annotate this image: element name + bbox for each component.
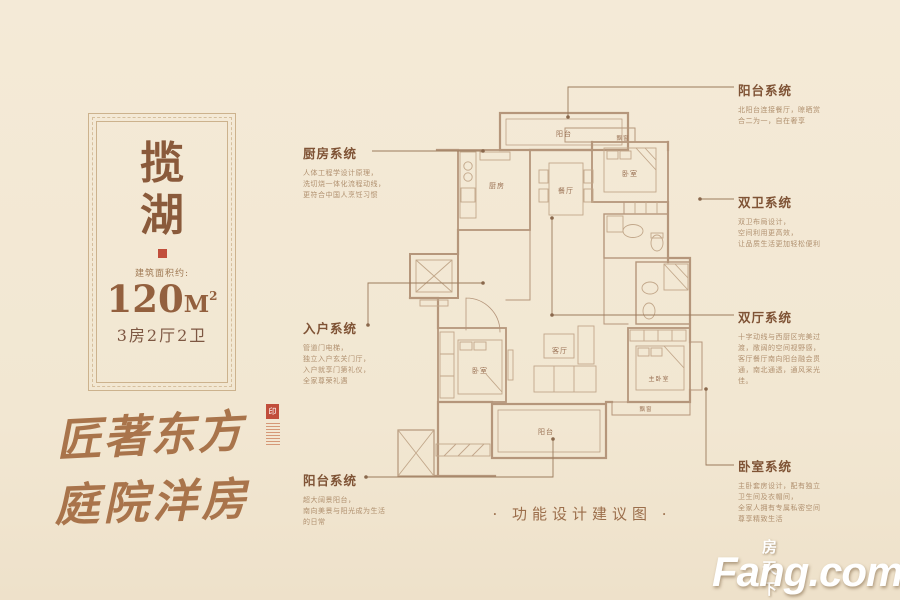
- slogan-seal-microtext: [266, 423, 280, 445]
- project-name-char1: 揽: [140, 138, 184, 190]
- room-label-balcony-top: 阳台: [556, 129, 572, 138]
- desc-line: 合二为一，自在奢享: [738, 116, 860, 127]
- annotation-title: 阳台系统: [738, 80, 860, 99]
- desc-line: 洗切烧一体化流程动线，: [303, 179, 425, 190]
- annotation-balcony-system-right: 阳台系统 北阳台连接餐厅，晾晒赏 合二为一，自在奢享: [738, 80, 860, 127]
- floor-plan-fixtures: [398, 148, 688, 476]
- desc-line: 独立入户玄关门厅，: [303, 354, 425, 365]
- annotation-hall-system: 双厅系统 十字动线与西厨区完美过 渡，敞阔的空间视野感， 客厅餐厅南向阳台融会贯…: [738, 307, 860, 387]
- desc-line: 十字动线与西厨区完美过: [738, 332, 860, 343]
- desc-line: 管道门电梯，: [303, 343, 425, 354]
- area-unit: M: [184, 293, 209, 316]
- desc-line: 通，南北通透，通风采光: [738, 365, 860, 376]
- annotation-title: 卧室系统: [738, 456, 860, 475]
- room-label-bay-top: 飘窗: [616, 134, 629, 142]
- annotation-bedroom-system: 卧室系统 主卧套房设计，配有独立 卫生间及衣帽间， 全家人拥有专属私密空间 尊享…: [738, 456, 860, 525]
- annotation-title: 厨房系统: [303, 143, 425, 162]
- annotation-desc: 十字动线与西厨区完美过 渡，敞阔的空间视野感， 客厅餐厅南向阳台融会贯 通，南北…: [738, 332, 860, 387]
- desc-line: 的日常: [303, 517, 425, 528]
- desc-line: 卫生间及衣帽间，: [738, 492, 860, 503]
- annotation-bath-system: 双卫系统 双卫布局设计， 空间利用更高效， 让品质生活更加轻松便利: [738, 192, 860, 250]
- area-superscript: 2: [209, 290, 217, 302]
- desc-line: 双卫布局设计，: [738, 217, 860, 228]
- seal-mark: [158, 249, 167, 258]
- annotation-desc: 双卫布局设计， 空间利用更高效， 让品质生活更加轻松便利: [738, 217, 860, 250]
- desc-line: 渡，敞阔的空间视野感，: [738, 343, 860, 354]
- area-value: 120 M 2: [106, 281, 217, 318]
- area-number: 120: [106, 281, 183, 318]
- annotation-title: 双厅系统: [738, 307, 860, 326]
- desc-line: 更符合中国人烹饪习惯: [303, 190, 425, 201]
- project-name-char2: 湖: [140, 190, 184, 242]
- desc-line: 超大阔景阳台，: [303, 495, 425, 506]
- badge-frame-middle: 揽 湖 建筑面积约: 120 M 2 3房2厅2卫: [92, 117, 232, 387]
- room-layout: 3房2厅2卫: [117, 322, 208, 346]
- desc-line: 南向美景与阳光成为生活: [303, 506, 425, 517]
- room-label-kitchen: 厨房: [489, 181, 505, 190]
- annotation-desc: 人体工程学设计原理， 洗切烧一体化流程动线， 更符合中国人烹饪习惯: [303, 168, 425, 201]
- annotation-desc: 北阳台连接餐厅，晾晒赏 合二为一，自在奢享: [738, 105, 860, 127]
- annotation-desc: 主卧套房设计，配有独立 卫生间及衣帽间， 全家人拥有专属私密空间 尊享精致生活: [738, 481, 860, 525]
- annotation-entry-system: 入户系统 管道门电梯， 独立入户玄关门厅， 入户就享门第礼仪， 全家尊荣礼遇: [303, 318, 425, 387]
- room-label-bedroom-top: 卧室: [622, 169, 638, 178]
- badge-frame-inner: 揽 湖 建筑面积约: 120 M 2 3房2厅2卫: [96, 121, 228, 383]
- desc-line: 主卧套房设计，配有独立: [738, 481, 860, 492]
- annotation-kitchen-system: 厨房系统 人体工程学设计原理， 洗切烧一体化流程动线， 更符合中国人烹饪习惯: [303, 143, 425, 201]
- room-label-dining: 餐厅: [558, 186, 574, 195]
- desc-line: 全家尊荣礼遇: [303, 376, 425, 387]
- annotation-desc: 超大阔景阳台， 南向美景与阳光成为生活 的日常: [303, 495, 425, 528]
- room-label-bedroom-left: 卧室: [472, 366, 488, 375]
- desc-line: 全家人拥有专属私密空间: [738, 503, 860, 514]
- room-label-bay-bottom: 飘窗: [639, 405, 652, 413]
- slogan-line1: 匠著东方: [54, 392, 292, 469]
- desc-line: 人体工程学设计原理，: [303, 168, 425, 179]
- annotation-title: 入户系统: [303, 318, 425, 337]
- desc-line: 北阳台连接餐厅，晾晒赏: [738, 105, 860, 116]
- annotation-title: 双卫系统: [738, 192, 860, 211]
- room-label-master-bedroom: 主卧室: [648, 375, 669, 383]
- annotation-title: 阳台系统: [303, 470, 425, 489]
- slogan-line2: 庭院洋房: [53, 461, 292, 534]
- slogan: 匠著东方 庭院洋房 印: [56, 398, 291, 530]
- desc-line: 佳。: [738, 376, 860, 387]
- desc-line: 空间利用更高效，: [738, 228, 860, 239]
- annotation-balcony-system-left: 阳台系统 超大阔景阳台， 南向美景与阳光成为生活 的日常: [303, 470, 425, 528]
- project-badge-frame: 揽 湖 建筑面积约: 120 M 2 3房2厅2卫: [88, 113, 236, 391]
- annotation-desc: 管道门电梯， 独立入户玄关门厅， 入户就享门第礼仪， 全家尊荣礼遇: [303, 343, 425, 387]
- room-label-living: 客厅: [552, 346, 568, 355]
- room-label-balcony-bottom: 阳台: [538, 427, 554, 436]
- desc-line: 让品质生活更加轻松便利: [738, 239, 860, 250]
- desc-line: 尊享精致生活: [738, 514, 860, 525]
- plan-caption: · 功能设计建议图 ·: [452, 503, 712, 524]
- slogan-seal: 印: [266, 404, 279, 419]
- poster: 阳台 飘窗 厨房 餐厅 卧室 客厅 卧室 主卧室 飘窗 阳台 揽 湖 建筑面积约…: [0, 0, 900, 600]
- desc-line: 入户就享门第礼仪，: [303, 365, 425, 376]
- desc-line: 客厅餐厅南向阳台融会贯: [738, 354, 860, 365]
- project-name: 揽 湖: [140, 138, 184, 242]
- fang-watermark-en: Fang.com: [712, 548, 900, 596]
